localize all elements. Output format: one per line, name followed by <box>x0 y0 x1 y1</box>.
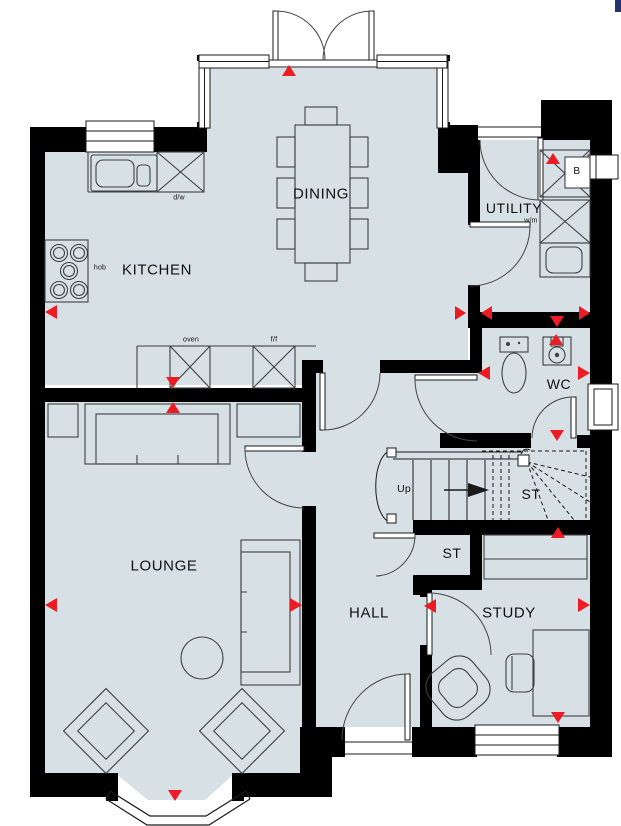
dining-label: DINING <box>293 187 349 202</box>
french-doors <box>273 11 374 60</box>
stair-store-label: ST <box>521 487 540 501</box>
lounge-label: LOUNGE <box>131 559 198 574</box>
hob-label: hob <box>94 265 106 272</box>
kitchen-label: KITCHEN <box>122 263 192 278</box>
front-door-threshold <box>345 727 412 757</box>
hall-label: HALL <box>349 606 389 621</box>
utility-label: UTILITY <box>486 201 542 215</box>
fridge-freezer-label: f/f <box>271 337 277 344</box>
wc-window <box>588 384 618 430</box>
stairs-up-label: Up <box>397 484 411 495</box>
hall-store-label: ST <box>442 546 461 560</box>
floor-plan-drawing <box>0 0 621 826</box>
washing-machine-label: w/m <box>524 218 537 225</box>
oven-label: oven <box>183 337 199 344</box>
floor-plan: KITCHEN DINING UTILITY WC LOUNGE HALL ST… <box>0 0 621 826</box>
study-label: STUDY <box>482 606 536 621</box>
corner-artifact <box>615 0 621 12</box>
boiler-label: B <box>573 167 580 177</box>
kitchen-window <box>86 121 154 152</box>
dishwasher-label: d/w <box>173 195 185 202</box>
utility-window <box>588 155 618 179</box>
utility-door-threshold <box>478 123 541 140</box>
study-window <box>475 725 559 755</box>
wc-label: WC <box>547 377 572 391</box>
